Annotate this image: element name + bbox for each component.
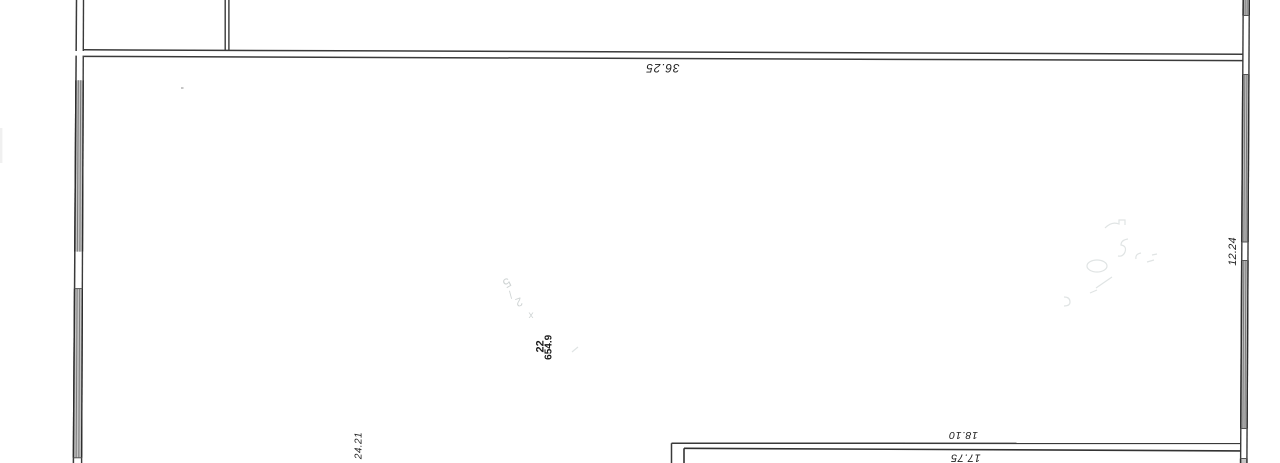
svg-text:24.21: 24.21 [354,432,365,460]
svg-text:/: / [505,288,514,300]
svg-text:18.10: 18.10 [949,429,978,441]
svg-text:x: x [529,310,534,321]
svg-text:12.24: 12.24 [1227,237,1239,266]
svg-text:654.9: 654.9 [544,334,555,359]
svg-text:17.75: 17.75 [950,452,980,463]
svg-text:2: 2 [513,294,524,310]
svg-text:36.25: 36.25 [646,61,680,75]
